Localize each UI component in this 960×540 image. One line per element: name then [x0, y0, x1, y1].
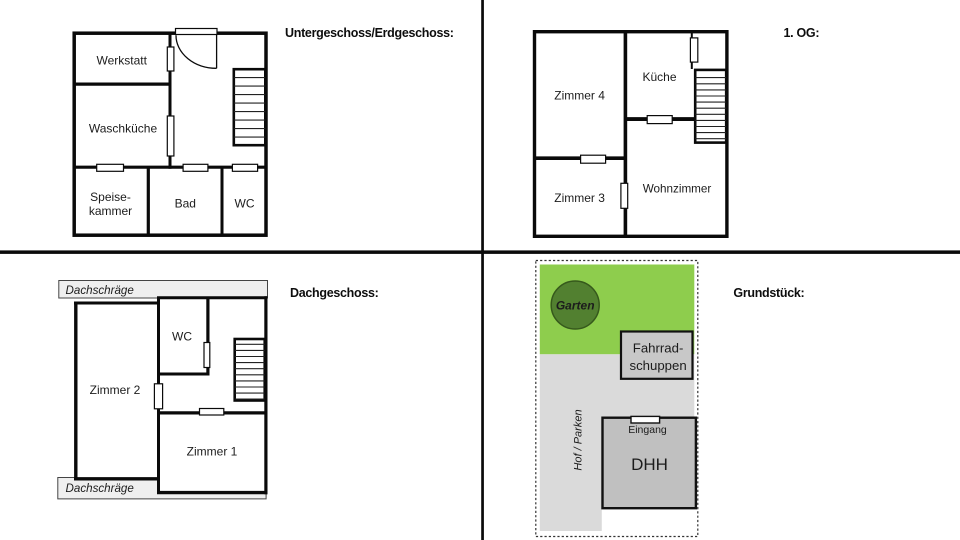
svg-text:Wohnzimmer: Wohnzimmer: [643, 183, 712, 196]
svg-text:Dachschräge: Dachschräge: [66, 284, 135, 297]
svg-text:Bad: Bad: [175, 197, 196, 211]
svg-text:WC: WC: [172, 330, 192, 344]
svg-text:Garten: Garten: [556, 298, 595, 312]
svg-text:DHH: DHH: [631, 455, 668, 474]
svg-text:kammer: kammer: [89, 204, 132, 218]
svg-text:Dachgeschoss:: Dachgeschoss:: [290, 286, 379, 300]
svg-text:Zimmer 1: Zimmer 1: [187, 445, 238, 459]
svg-text:Grundstück:: Grundstück:: [733, 286, 804, 300]
svg-text:Dachschräge: Dachschräge: [66, 482, 135, 495]
svg-text:Werkstatt: Werkstatt: [96, 54, 147, 68]
svg-text:1. OG:: 1. OG:: [784, 26, 820, 40]
svg-text:WC: WC: [235, 197, 255, 211]
svg-text:schuppen: schuppen: [629, 358, 686, 373]
svg-text:Eingang: Eingang: [628, 424, 667, 436]
svg-text:Hof / Parken: Hof / Parken: [572, 409, 584, 470]
svg-text:Zimmer 2: Zimmer 2: [90, 383, 141, 397]
svg-text:Waschküche: Waschküche: [89, 122, 158, 136]
svg-text:Küche: Küche: [642, 70, 676, 84]
svg-text:Zimmer 3: Zimmer 3: [554, 191, 605, 205]
svg-text:Zimmer 4: Zimmer 4: [554, 89, 605, 103]
svg-text:Speise-: Speise-: [90, 190, 131, 204]
svg-text:Fahrrad-: Fahrrad-: [633, 340, 684, 355]
svg-text:Untergeschoss/Erdgeschoss:: Untergeschoss/Erdgeschoss:: [285, 26, 454, 40]
